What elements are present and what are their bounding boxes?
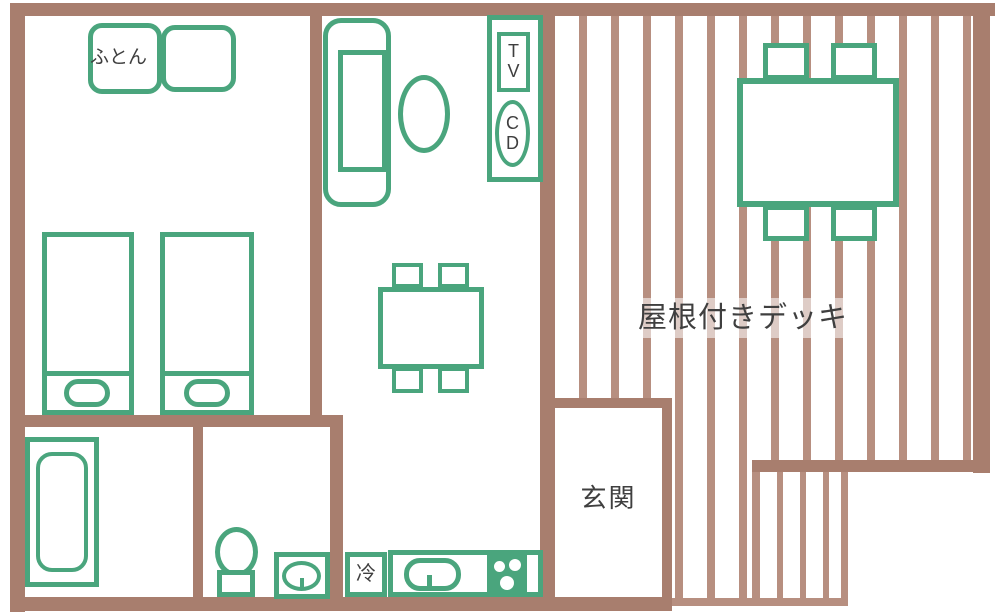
burner (500, 576, 514, 590)
burner (509, 559, 521, 571)
deck-chair (763, 205, 809, 241)
floor-plan: ふとん TV CD 冷 玄関 屋根付きデッキ (0, 0, 1000, 615)
kitchen-sink (404, 558, 461, 591)
faucet (427, 575, 432, 591)
wall-deck-right (973, 3, 990, 473)
chair (438, 367, 469, 393)
futon-2 (161, 25, 236, 92)
wall-entrance-right (662, 398, 672, 611)
deck-bottom-edge (672, 598, 848, 606)
wall-bedroom-bottom (10, 415, 343, 427)
toilet-base (217, 570, 255, 597)
bed-2-divider (165, 371, 249, 376)
deck-label: 屋根付きデッキ (636, 298, 850, 338)
deck-chair (831, 43, 877, 80)
cd-player: CD (495, 100, 530, 167)
wall-bedroom-living (310, 3, 322, 427)
deck-chair (831, 205, 877, 241)
side-table-oval (398, 75, 450, 153)
bed-1-pillow (64, 379, 110, 407)
entrance-label: 玄関 (555, 478, 662, 515)
wall-deck-lower-edge (752, 460, 990, 472)
wall-entrance-top (545, 398, 672, 408)
deck-planks-lower (752, 466, 848, 602)
sofa-seat (338, 50, 387, 172)
chair (438, 263, 469, 288)
deck-chair (763, 43, 809, 80)
stove (487, 553, 527, 595)
bed-2-pillow (184, 379, 230, 407)
deck-planks-side (672, 466, 752, 602)
cd-label: CD (504, 114, 522, 154)
bathtub-inner (36, 452, 88, 572)
futon-label: ふとん (90, 42, 160, 69)
washbasin-drain (300, 578, 304, 590)
wall-bath-toilet (193, 415, 203, 609)
chair (392, 367, 423, 393)
refrigerator-label: 冷 (345, 552, 387, 597)
dining-table (378, 287, 484, 369)
tv: TV (497, 32, 530, 92)
burner (494, 561, 505, 572)
deck-table (737, 78, 899, 207)
bed-1-divider (47, 371, 129, 376)
wall-left (10, 3, 25, 612)
wall-toilet-living (330, 415, 343, 609)
chair (392, 263, 423, 288)
tv-label: TV (505, 42, 523, 82)
